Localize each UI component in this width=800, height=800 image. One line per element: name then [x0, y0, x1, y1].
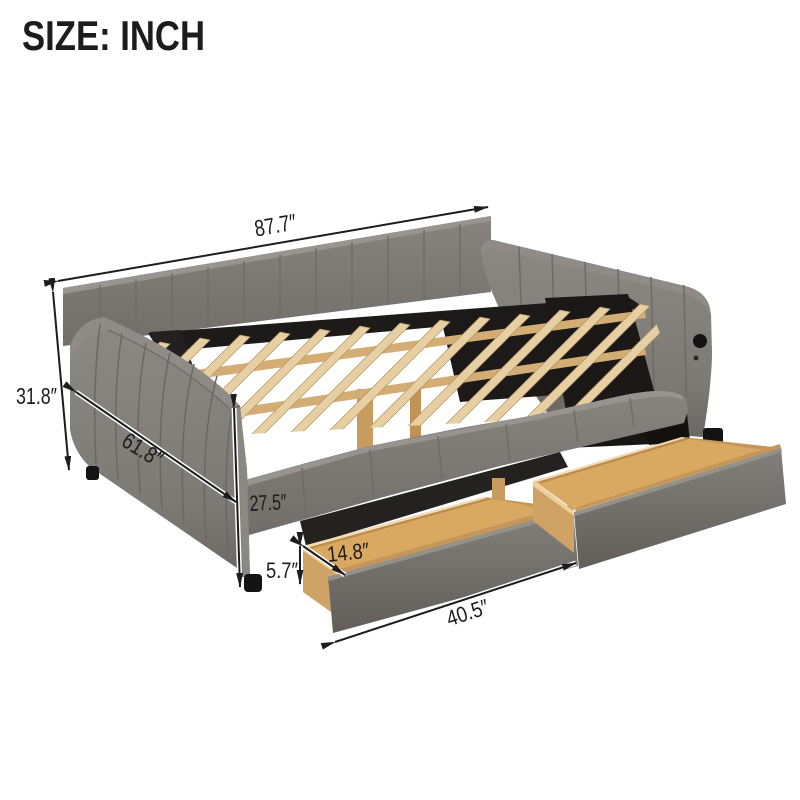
svg-text:SIZE: INCH: SIZE: INCH — [22, 12, 205, 59]
svg-text:27.5″: 27.5″ — [249, 489, 287, 516]
svg-text:5.7″: 5.7″ — [266, 558, 298, 583]
svg-text:87.7″: 87.7″ — [252, 209, 298, 242]
svg-text:14.8″: 14.8″ — [326, 538, 371, 567]
svg-text:31.8″: 31.8″ — [16, 383, 57, 409]
